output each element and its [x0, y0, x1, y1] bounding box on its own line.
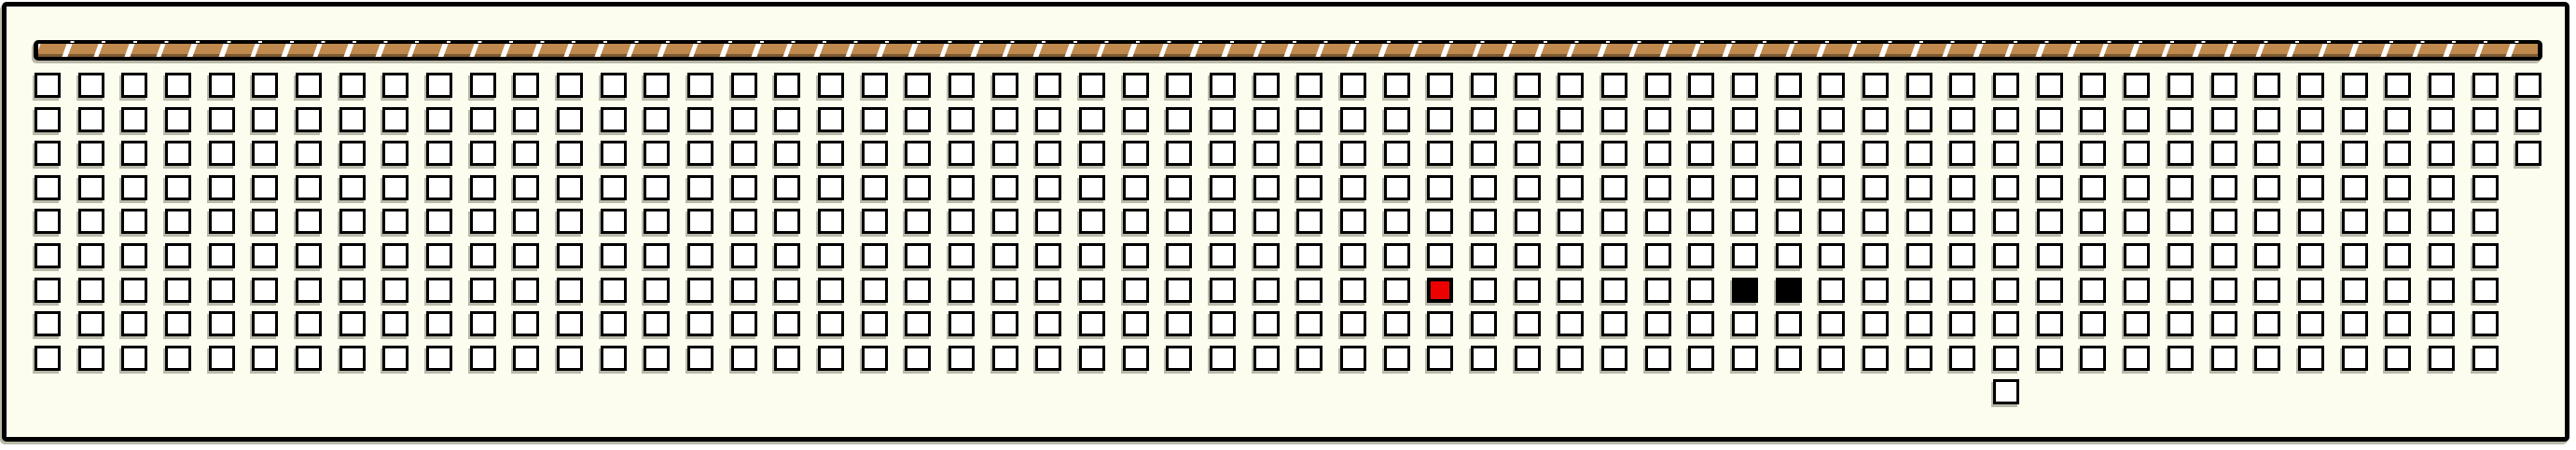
seat-cell[interactable]	[1384, 73, 1410, 98]
seat-cell[interactable]	[209, 175, 235, 200]
seat-cell[interactable]	[382, 311, 409, 336]
seat-cell[interactable]	[1776, 73, 1802, 98]
seat-cell[interactable]	[165, 141, 191, 166]
seat-cell[interactable]	[1688, 311, 1714, 336]
seat-cell[interactable]	[121, 107, 147, 132]
seat-cell[interactable]	[1296, 209, 1323, 234]
seat-cell[interactable]	[905, 175, 931, 200]
seat-cell[interactable]	[296, 175, 322, 200]
seat-cell[interactable]	[1601, 73, 1627, 98]
seat-cell[interactable]	[1471, 278, 1497, 303]
seat-cell[interactable]	[818, 311, 844, 336]
seat-cell[interactable]	[2342, 107, 2368, 132]
seat-cell[interactable]	[2298, 73, 2324, 98]
seat-cell[interactable]	[1123, 107, 1149, 132]
seat-cell[interactable]	[78, 175, 104, 200]
seat-cell[interactable]	[339, 311, 366, 336]
seat-cell[interactable]	[1123, 209, 1149, 234]
seat-cell[interactable]	[1688, 107, 1714, 132]
seat-cell[interactable]	[1863, 141, 1889, 166]
seat-cell[interactable]	[2429, 311, 2455, 336]
seat-cell[interactable]	[1384, 243, 1410, 268]
seat-cell[interactable]	[992, 209, 1018, 234]
seat-cell[interactable]	[2472, 107, 2499, 132]
seat-cell[interactable]	[1384, 346, 1410, 371]
seat-cell[interactable]	[1427, 346, 1453, 371]
seat-cell[interactable]	[1863, 175, 1889, 200]
seat-cell[interactable]	[1906, 73, 1932, 98]
seat-cell[interactable]	[1949, 141, 1975, 166]
seat-cell[interactable]	[209, 243, 235, 268]
seat-cell[interactable]	[1558, 141, 1584, 166]
seat-cell[interactable]	[1515, 175, 1541, 200]
seat-cell[interactable]	[1123, 73, 1149, 98]
seat-cell[interactable]	[601, 209, 627, 234]
seat-cell[interactable]	[949, 278, 975, 303]
seat-cell[interactable]	[513, 243, 539, 268]
seat-cell[interactable]	[35, 346, 61, 371]
seat-cell[interactable]	[35, 107, 61, 132]
seat-cell[interactable]	[2124, 243, 2150, 268]
seat-cell[interactable]	[1906, 209, 1932, 234]
seat-cell[interactable]	[339, 73, 366, 98]
seat-cell[interactable]	[426, 107, 452, 132]
seat-cell[interactable]	[165, 243, 191, 268]
seat-cell[interactable]	[382, 243, 409, 268]
seat-cell[interactable]	[1819, 107, 1845, 132]
seat-cell[interactable]	[2124, 209, 2150, 234]
seat-cell[interactable]	[252, 209, 278, 234]
seat-cell[interactable]	[1645, 141, 1671, 166]
seat-cell[interactable]	[2211, 175, 2237, 200]
seat-cell[interactable]	[1210, 346, 1236, 371]
seat-cell[interactable]	[1819, 141, 1845, 166]
seat-cell[interactable]	[731, 175, 757, 200]
seat-cell[interactable]	[905, 346, 931, 371]
seat-cell[interactable]	[1688, 243, 1714, 268]
seat-cell[interactable]	[513, 141, 539, 166]
seat-cell[interactable]	[1776, 175, 1802, 200]
seat-cell[interactable]	[1253, 278, 1280, 303]
seat-cell[interactable]	[1427, 175, 1453, 200]
seat-cell[interactable]	[1035, 243, 1061, 268]
seat-cell[interactable]	[1427, 278, 1453, 303]
seat-cell[interactable]	[1863, 107, 1889, 132]
seat-cell[interactable]	[2211, 107, 2237, 132]
seat-cell[interactable]	[2472, 278, 2499, 303]
seat-cell[interactable]	[949, 107, 975, 132]
seat-cell[interactable]	[2298, 346, 2324, 371]
seat-cell[interactable]	[78, 73, 104, 98]
seat-cell[interactable]	[992, 107, 1018, 132]
seat-cell[interactable]	[2124, 107, 2150, 132]
seat-cell[interactable]	[2515, 107, 2541, 132]
seat-cell[interactable]	[1993, 278, 2019, 303]
seat-cell[interactable]	[1949, 107, 1975, 132]
seat-cell[interactable]	[2298, 209, 2324, 234]
seat-cell[interactable]	[1688, 278, 1714, 303]
seat-cell[interactable]	[470, 107, 496, 132]
seat-cell[interactable]	[862, 278, 888, 303]
seat-cell[interactable]	[2167, 311, 2194, 336]
seat-cell[interactable]	[818, 175, 844, 200]
seat-cell[interactable]	[1210, 107, 1236, 132]
seat-cell[interactable]	[601, 243, 627, 268]
seat-cell[interactable]	[1210, 278, 1236, 303]
seat-cell[interactable]	[78, 278, 104, 303]
seat-cell[interactable]	[818, 73, 844, 98]
seat-cell[interactable]	[1166, 209, 1192, 234]
seat-cell[interactable]	[165, 311, 191, 336]
seat-cell[interactable]	[1471, 175, 1497, 200]
seat-cell[interactable]	[2080, 73, 2106, 98]
seat-cell[interactable]	[209, 141, 235, 166]
seat-cell[interactable]	[818, 346, 844, 371]
seat-cell[interactable]	[1079, 346, 1105, 371]
seat-cell[interactable]	[1079, 243, 1105, 268]
seat-cell[interactable]	[1515, 311, 1541, 336]
seat-cell[interactable]	[1993, 107, 2019, 132]
seat-cell[interactable]	[2037, 107, 2063, 132]
seat-cell[interactable]	[774, 311, 800, 336]
seat-cell[interactable]	[252, 107, 278, 132]
seat-cell[interactable]	[2254, 141, 2280, 166]
seat-cell[interactable]	[1340, 209, 1366, 234]
seat-cell[interactable]	[644, 278, 670, 303]
seat-cell[interactable]	[949, 311, 975, 336]
seat-cell[interactable]	[1601, 141, 1627, 166]
seat-cell[interactable]	[1166, 141, 1192, 166]
seat-cell[interactable]	[2080, 346, 2106, 371]
seat-cell[interactable]	[470, 278, 496, 303]
seat-cell[interactable]	[1340, 175, 1366, 200]
seat-cell[interactable]	[1732, 209, 1758, 234]
seat-cell[interactable]	[35, 278, 61, 303]
seat-cell[interactable]	[1732, 141, 1758, 166]
seat-cell[interactable]	[1601, 209, 1627, 234]
seat-cell[interactable]	[1688, 209, 1714, 234]
seat-cell[interactable]	[1732, 73, 1758, 98]
seat-cell[interactable]	[601, 278, 627, 303]
seat-cell[interactable]	[1645, 311, 1671, 336]
seat-cell[interactable]	[2472, 141, 2499, 166]
seat-cell[interactable]	[905, 141, 931, 166]
seat-cell[interactable]	[557, 141, 583, 166]
seat-cell[interactable]	[731, 346, 757, 371]
seat-cell[interactable]	[2385, 243, 2411, 268]
seat-cell[interactable]	[1819, 278, 1845, 303]
seat-cell[interactable]	[2254, 346, 2280, 371]
seat-cell[interactable]	[470, 175, 496, 200]
seat-cell[interactable]	[513, 175, 539, 200]
seat-cell[interactable]	[2167, 209, 2194, 234]
seat-cell[interactable]	[1819, 209, 1845, 234]
seat-cell[interactable]	[426, 73, 452, 98]
seat-cell[interactable]	[2167, 346, 2194, 371]
seat-cell[interactable]	[1471, 311, 1497, 336]
seat-cell[interactable]	[1296, 346, 1323, 371]
seat-cell[interactable]	[1993, 141, 2019, 166]
seat-cell[interactable]	[513, 209, 539, 234]
seat-cell[interactable]	[296, 107, 322, 132]
seat-cell[interactable]	[2472, 346, 2499, 371]
seat-cell[interactable]	[2080, 175, 2106, 200]
seat-cell[interactable]	[382, 175, 409, 200]
seat-cell[interactable]	[2472, 311, 2499, 336]
seat-cell[interactable]	[601, 141, 627, 166]
seat-cell[interactable]	[121, 141, 147, 166]
seat-cell[interactable]	[1427, 209, 1453, 234]
seat-cell[interactable]	[426, 346, 452, 371]
seat-cell[interactable]	[731, 73, 757, 98]
seat-cell[interactable]	[1210, 209, 1236, 234]
seat-cell[interactable]	[513, 311, 539, 336]
seat-cell[interactable]	[644, 175, 670, 200]
seat-cell[interactable]	[818, 209, 844, 234]
seat-cell[interactable]	[2254, 73, 2280, 98]
seat-cell[interactable]	[209, 346, 235, 371]
seat-cell[interactable]	[1296, 311, 1323, 336]
seat-cell[interactable]	[470, 73, 496, 98]
seat-cell[interactable]	[2298, 243, 2324, 268]
seat-cell[interactable]	[992, 311, 1018, 336]
seat-cell[interactable]	[1558, 107, 1584, 132]
seat-cell[interactable]	[426, 278, 452, 303]
seat-cell[interactable]	[2124, 141, 2150, 166]
seat-cell[interactable]	[601, 107, 627, 132]
seat-cell[interactable]	[731, 243, 757, 268]
seat-cell[interactable]	[2124, 175, 2150, 200]
seat-cell[interactable]	[426, 175, 452, 200]
seat-cell[interactable]	[35, 141, 61, 166]
seat-cell[interactable]	[209, 209, 235, 234]
seat-cell[interactable]	[1993, 379, 2019, 404]
seat-cell[interactable]	[1471, 209, 1497, 234]
seat-cell[interactable]	[2429, 73, 2455, 98]
seat-cell[interactable]	[2298, 107, 2324, 132]
seat-cell[interactable]	[2211, 243, 2237, 268]
seat-cell[interactable]	[1906, 175, 1932, 200]
seat-cell[interactable]	[1863, 73, 1889, 98]
seat-cell[interactable]	[818, 278, 844, 303]
seat-cell[interactable]	[1296, 107, 1323, 132]
seat-cell[interactable]	[2037, 311, 2063, 336]
seat-cell[interactable]	[2472, 209, 2499, 234]
seat-cell[interactable]	[1427, 243, 1453, 268]
seat-cell[interactable]	[35, 175, 61, 200]
seat-cell[interactable]	[1993, 346, 2019, 371]
seat-cell[interactable]	[774, 73, 800, 98]
seat-cell[interactable]	[687, 311, 713, 336]
seat-cell[interactable]	[1819, 346, 1845, 371]
seat-cell[interactable]	[644, 141, 670, 166]
seat-cell[interactable]	[2385, 346, 2411, 371]
seat-cell[interactable]	[949, 243, 975, 268]
seat-cell[interactable]	[1471, 107, 1497, 132]
seat-cell[interactable]	[1601, 311, 1627, 336]
seat-cell[interactable]	[165, 107, 191, 132]
seat-cell[interactable]	[426, 141, 452, 166]
seat-cell[interactable]	[252, 141, 278, 166]
seat-cell[interactable]	[339, 346, 366, 371]
seat-cell[interactable]	[818, 243, 844, 268]
seat-cell[interactable]	[2167, 278, 2194, 303]
seat-cell[interactable]	[1776, 243, 1802, 268]
seat-cell[interactable]	[2342, 346, 2368, 371]
seat-cell[interactable]	[862, 243, 888, 268]
seat-cell[interactable]	[209, 311, 235, 336]
seat-cell[interactable]	[1819, 175, 1845, 200]
seat-cell[interactable]	[1776, 278, 1802, 303]
seat-cell[interactable]	[1427, 141, 1453, 166]
seat-cell[interactable]	[1253, 141, 1280, 166]
seat-cell[interactable]	[1558, 346, 1584, 371]
seat-cell[interactable]	[2167, 243, 2194, 268]
seat-cell[interactable]	[687, 209, 713, 234]
seat-cell[interactable]	[1863, 278, 1889, 303]
seat-cell[interactable]	[1166, 175, 1192, 200]
seat-cell[interactable]	[78, 209, 104, 234]
seat-cell[interactable]	[1253, 73, 1280, 98]
seat-cell[interactable]	[2254, 243, 2280, 268]
seat-cell[interactable]	[1558, 243, 1584, 268]
seat-cell[interactable]	[2515, 73, 2541, 98]
seat-cell[interactable]	[339, 175, 366, 200]
seat-cell[interactable]	[1732, 175, 1758, 200]
seat-cell[interactable]	[2124, 311, 2150, 336]
seat-cell[interactable]	[339, 107, 366, 132]
seat-cell[interactable]	[1949, 209, 1975, 234]
seat-cell[interactable]	[1776, 107, 1802, 132]
seat-cell[interactable]	[905, 311, 931, 336]
seat-cell[interactable]	[2037, 243, 2063, 268]
seat-cell[interactable]	[470, 209, 496, 234]
seat-cell[interactable]	[992, 141, 1018, 166]
seat-cell[interactable]	[513, 278, 539, 303]
seat-cell[interactable]	[1993, 311, 2019, 336]
seat-cell[interactable]	[992, 243, 1018, 268]
seat-cell[interactable]	[209, 278, 235, 303]
seat-cell[interactable]	[2429, 209, 2455, 234]
seat-cell[interactable]	[1471, 346, 1497, 371]
seat-cell[interactable]	[1558, 311, 1584, 336]
seat-cell[interactable]	[862, 107, 888, 132]
seat-cell[interactable]	[2211, 73, 2237, 98]
seat-cell[interactable]	[1296, 243, 1323, 268]
seat-cell[interactable]	[557, 209, 583, 234]
seat-cell[interactable]	[1949, 175, 1975, 200]
seat-cell[interactable]	[1906, 243, 1932, 268]
seat-cell[interactable]	[1819, 311, 1845, 336]
seat-cell[interactable]	[1906, 278, 1932, 303]
seat-cell[interactable]	[1863, 243, 1889, 268]
seat-cell[interactable]	[992, 73, 1018, 98]
seat-cell[interactable]	[1123, 311, 1149, 336]
seat-cell[interactable]	[2037, 278, 2063, 303]
seat-cell[interactable]	[731, 209, 757, 234]
seat-cell[interactable]	[1515, 209, 1541, 234]
seat-cell[interactable]	[1340, 107, 1366, 132]
seat-cell[interactable]	[557, 107, 583, 132]
seat-cell[interactable]	[252, 175, 278, 200]
seat-cell[interactable]	[382, 346, 409, 371]
seat-cell[interactable]	[2080, 107, 2106, 132]
seat-cell[interactable]	[1166, 311, 1192, 336]
seat-cell[interactable]	[2385, 311, 2411, 336]
seat-cell[interactable]	[774, 141, 800, 166]
seat-cell[interactable]	[78, 141, 104, 166]
seat-cell[interactable]	[2037, 346, 2063, 371]
seat-cell[interactable]	[1210, 73, 1236, 98]
seat-cell[interactable]	[1384, 209, 1410, 234]
seat-cell[interactable]	[296, 243, 322, 268]
seat-cell[interactable]	[1166, 107, 1192, 132]
seat-cell[interactable]	[1340, 243, 1366, 268]
seat-cell[interactable]	[1776, 209, 1802, 234]
seat-cell[interactable]	[252, 73, 278, 98]
seat-cell[interactable]	[1688, 141, 1714, 166]
seat-cell[interactable]	[1471, 73, 1497, 98]
seat-cell[interactable]	[78, 243, 104, 268]
seat-cell[interactable]	[905, 278, 931, 303]
seat-cell[interactable]	[1340, 73, 1366, 98]
seat-cell[interactable]	[2429, 346, 2455, 371]
seat-cell[interactable]	[2298, 141, 2324, 166]
seat-cell[interactable]	[905, 107, 931, 132]
seat-cell[interactable]	[644, 243, 670, 268]
seat-cell[interactable]	[2472, 243, 2499, 268]
seat-cell[interactable]	[1035, 311, 1061, 336]
seat-cell[interactable]	[1471, 141, 1497, 166]
seat-cell[interactable]	[644, 209, 670, 234]
seat-cell[interactable]	[1863, 311, 1889, 336]
seat-cell[interactable]	[2429, 107, 2455, 132]
seat-cell[interactable]	[687, 141, 713, 166]
seat-cell[interactable]	[2429, 175, 2455, 200]
seat-cell[interactable]	[252, 346, 278, 371]
seat-cell[interactable]	[1123, 346, 1149, 371]
seat-cell[interactable]	[949, 175, 975, 200]
seat-cell[interactable]	[1079, 209, 1105, 234]
seat-cell[interactable]	[862, 141, 888, 166]
seat-cell[interactable]	[1645, 107, 1671, 132]
seat-cell[interactable]	[1253, 243, 1280, 268]
seat-cell[interactable]	[905, 73, 931, 98]
seat-cell[interactable]	[1645, 209, 1671, 234]
seat-cell[interactable]	[2211, 209, 2237, 234]
seat-cell[interactable]	[1035, 141, 1061, 166]
seat-cell[interactable]	[1776, 346, 1802, 371]
seat-cell[interactable]	[2167, 175, 2194, 200]
seat-cell[interactable]	[557, 175, 583, 200]
seat-cell[interactable]	[1645, 175, 1671, 200]
seat-cell[interactable]	[818, 107, 844, 132]
seat-cell[interactable]	[1906, 107, 1932, 132]
seat-cell[interactable]	[557, 73, 583, 98]
seat-cell[interactable]	[2211, 311, 2237, 336]
seat-cell[interactable]	[121, 311, 147, 336]
seat-cell[interactable]	[1949, 73, 1975, 98]
seat-cell[interactable]	[731, 311, 757, 336]
seat-cell[interactable]	[2298, 278, 2324, 303]
seat-cell[interactable]	[2037, 175, 2063, 200]
seat-cell[interactable]	[905, 209, 931, 234]
seat-cell[interactable]	[2342, 175, 2368, 200]
seat-cell[interactable]	[2385, 175, 2411, 200]
seat-cell[interactable]	[1993, 73, 2019, 98]
seat-cell[interactable]	[470, 243, 496, 268]
seat-cell[interactable]	[1035, 175, 1061, 200]
